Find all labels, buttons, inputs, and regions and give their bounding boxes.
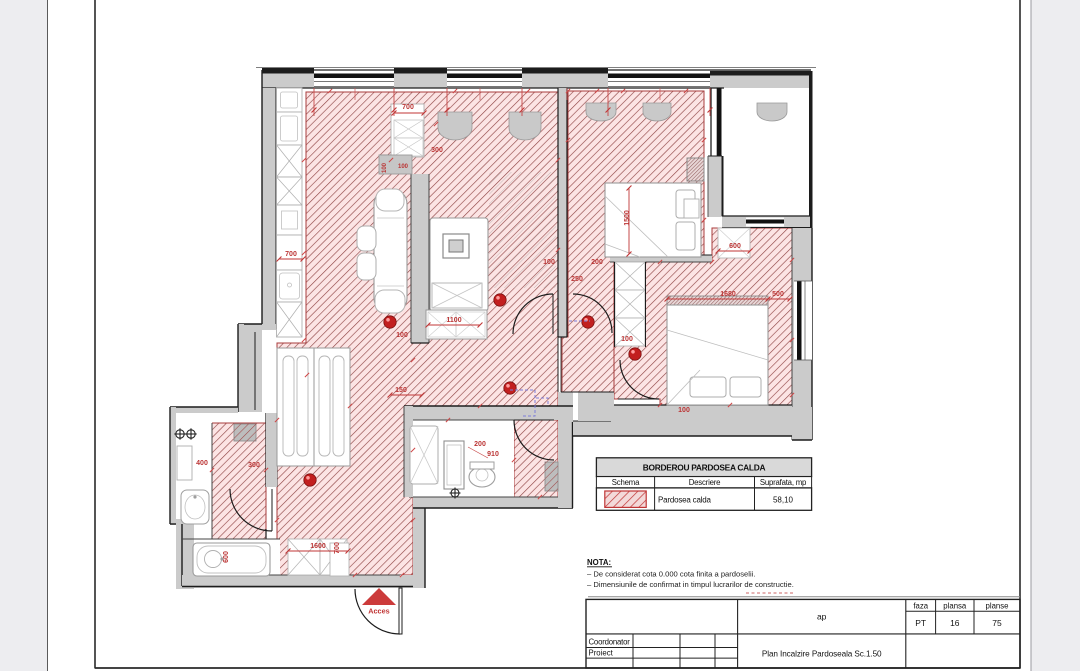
- svg-text:– De considerat cota 0.000 cot: – De considerat cota 0.000 cota finita a…: [587, 570, 755, 579]
- svg-text:910: 910: [487, 451, 499, 458]
- svg-text:16: 16: [950, 618, 960, 628]
- svg-text:BORDEROU PARDOSEA CALDA: BORDEROU PARDOSEA CALDA: [643, 463, 766, 473]
- svg-text:PT: PT: [915, 618, 926, 628]
- svg-text:300: 300: [431, 147, 443, 154]
- svg-text:400: 400: [196, 460, 208, 467]
- svg-text:Proiect: Proiect: [589, 649, 614, 658]
- svg-text:58,10: 58,10: [773, 495, 794, 504]
- svg-text:75: 75: [992, 618, 1002, 628]
- svg-text:faza: faza: [913, 601, 928, 610]
- svg-text:Plan Incalzire Pardoseala Sc.1: Plan Incalzire Pardoseala Sc.1.50: [762, 649, 882, 658]
- svg-text:150: 150: [395, 387, 407, 394]
- svg-text:600: 600: [729, 243, 741, 250]
- svg-text:1500: 1500: [624, 210, 631, 226]
- svg-text:Schema: Schema: [612, 478, 640, 487]
- svg-text:100: 100: [396, 332, 408, 339]
- svg-text:100: 100: [543, 259, 555, 266]
- svg-text:700: 700: [402, 104, 414, 111]
- svg-text:100: 100: [621, 336, 633, 343]
- svg-text:Pardosea calda: Pardosea calda: [658, 495, 712, 504]
- svg-text:100: 100: [678, 407, 690, 414]
- svg-text:1100: 1100: [446, 317, 461, 324]
- svg-text:planse: planse: [986, 601, 1009, 610]
- svg-text:300: 300: [248, 462, 260, 469]
- svg-text:600: 600: [223, 551, 230, 563]
- svg-text:Suprafata, mp: Suprafata, mp: [760, 478, 807, 487]
- svg-text:Acces: Acces: [368, 607, 390, 616]
- svg-text:Coordonator: Coordonator: [589, 637, 631, 646]
- svg-text:plansa: plansa: [943, 601, 967, 610]
- svg-text:250: 250: [571, 276, 583, 283]
- svg-text:NOTA:: NOTA:: [587, 558, 611, 567]
- svg-text:700: 700: [285, 251, 297, 258]
- svg-text:200: 200: [591, 259, 603, 266]
- svg-text:1680: 1680: [720, 291, 736, 298]
- svg-text:500: 500: [772, 291, 784, 298]
- svg-text:100: 100: [382, 162, 388, 173]
- svg-text:– Dimensiunile de confirmat in: – Dimensiunile de confirmat in timpul lu…: [587, 580, 794, 589]
- svg-text:200: 200: [474, 441, 486, 448]
- svg-text:700: 700: [334, 542, 341, 554]
- svg-text:Descriere: Descriere: [689, 478, 721, 487]
- svg-text:1600: 1600: [310, 543, 326, 550]
- svg-text:100: 100: [398, 164, 409, 170]
- svg-text:ap: ap: [817, 612, 827, 622]
